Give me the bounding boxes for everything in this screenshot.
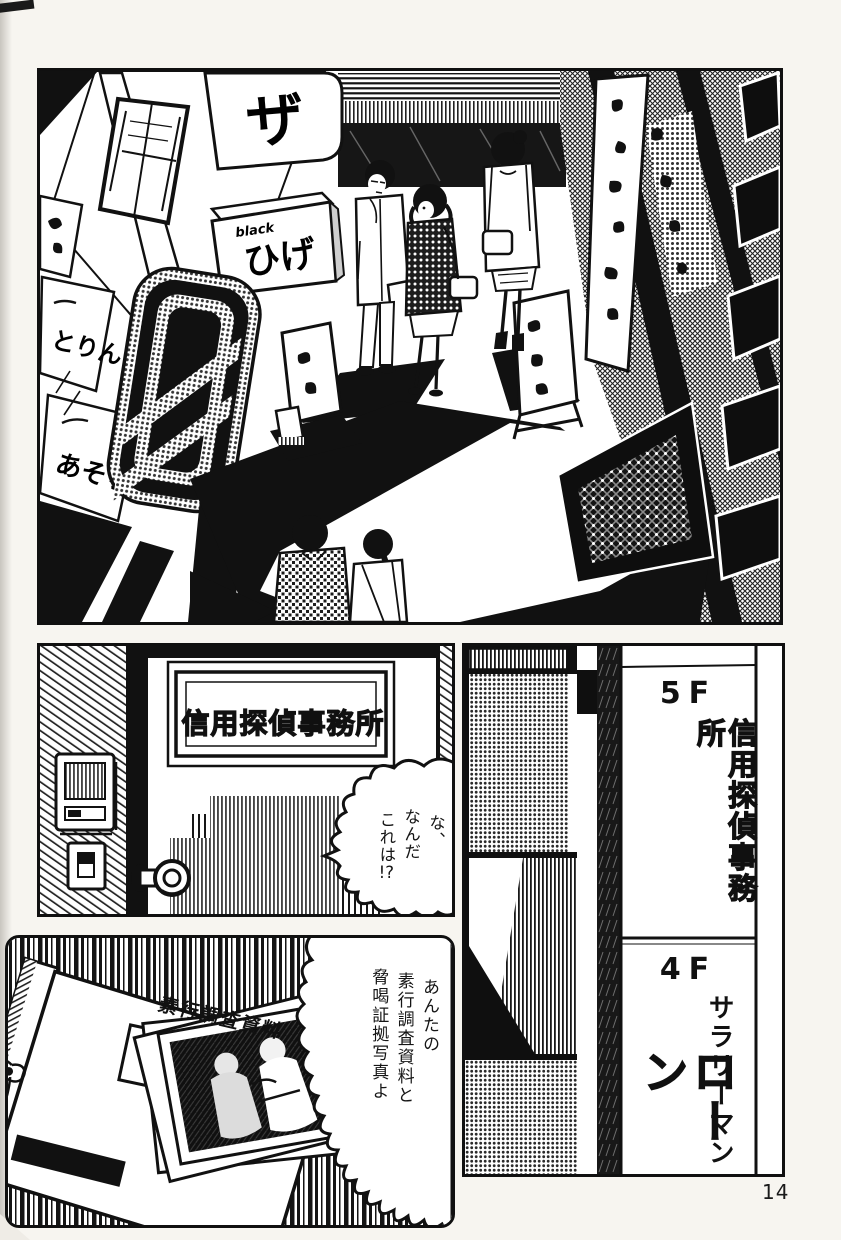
floor-5-tenant: 信用探偵事務所 bbox=[693, 718, 756, 934]
door-speech-bubble-text: な、 なんだ これは!? bbox=[370, 808, 444, 908]
za-sign-text: ザ bbox=[243, 84, 307, 157]
bubble-line: 素行調査資料と bbox=[394, 972, 412, 1124]
evidence-speech-bubble-text: あんたの 素行調査資料と 脅喝証拠写真よ bbox=[362, 968, 438, 1124]
light-switch[interactable] bbox=[68, 843, 105, 889]
intercom[interactable] bbox=[56, 754, 116, 834]
bubble-line: これは!? bbox=[377, 811, 395, 908]
manga-page: とりん あそら ザ black ひげ bbox=[0, 0, 841, 1240]
door-plate-text: 信用探偵事務所 bbox=[170, 702, 396, 742]
page-number: 14 bbox=[762, 1180, 789, 1204]
floor-4-label: 4F bbox=[621, 952, 756, 987]
bubble-line: なんだ bbox=[402, 808, 420, 908]
panel-office-door: 信用探偵事務所 な、 なんだ これは!? bbox=[37, 643, 455, 917]
floor-4-tenant-main: ローン bbox=[637, 1048, 736, 1177]
bubble-line: あんたの bbox=[420, 978, 438, 1124]
street-scene-artwork: とりん あそら ザ black ひげ bbox=[40, 71, 780, 622]
wall-texture-column bbox=[465, 646, 621, 1174]
scan-corner-mark bbox=[0, 0, 34, 13]
panel-floor-directory: 5F 信用探偵事務所 4F サラリーマン ローン bbox=[462, 643, 785, 1177]
floor-5-label: 5F bbox=[621, 676, 756, 711]
bubble-exclamation: !? bbox=[377, 864, 396, 881]
panel-street-scene: とりん あそら ザ black ひげ bbox=[37, 68, 783, 625]
bubble-line: な、 bbox=[427, 814, 445, 908]
door-knob[interactable] bbox=[131, 861, 189, 895]
panel-evidence-folder: 素行調査資料 あんたの 素行調査資料と 脅喝証拠写真よ bbox=[5, 935, 455, 1228]
bubble-line: 脅喝証拠写真よ bbox=[369, 968, 387, 1124]
za-sign: ザ bbox=[205, 73, 342, 169]
